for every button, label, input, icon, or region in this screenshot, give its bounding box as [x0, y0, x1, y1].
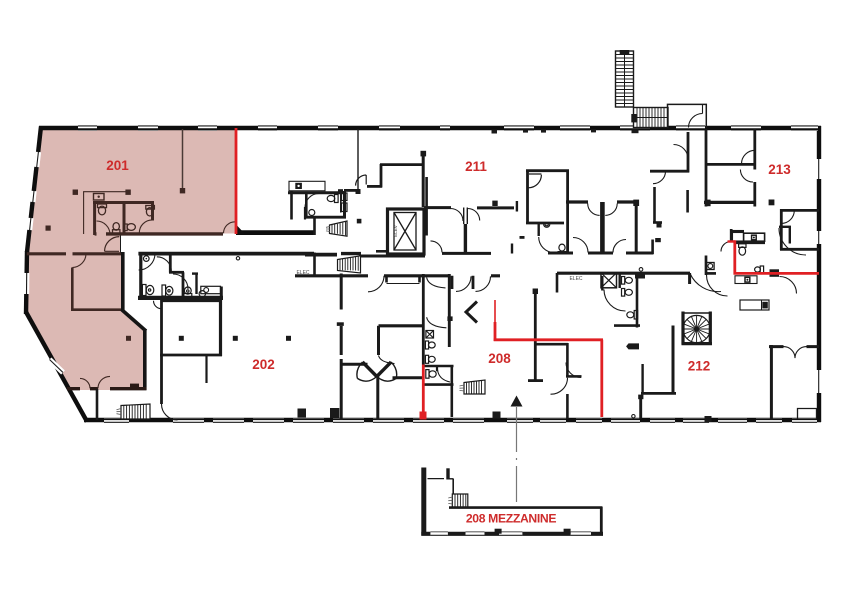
svg-text:ELEC: ELEC: [569, 276, 582, 282]
svg-text:ELEC: ELEC: [296, 270, 309, 276]
svg-text:202: 202: [252, 357, 275, 372]
svg-text:ELEV: ELEV: [393, 224, 398, 237]
svg-text:208: 208: [488, 351, 511, 366]
svg-text:213: 213: [768, 162, 791, 177]
svg-text:208 MEZZANINE: 208 MEZZANINE: [466, 512, 556, 526]
svg-text:211: 211: [465, 159, 487, 174]
svg-text:201: 201: [106, 158, 129, 173]
svg-text:212: 212: [688, 359, 711, 374]
